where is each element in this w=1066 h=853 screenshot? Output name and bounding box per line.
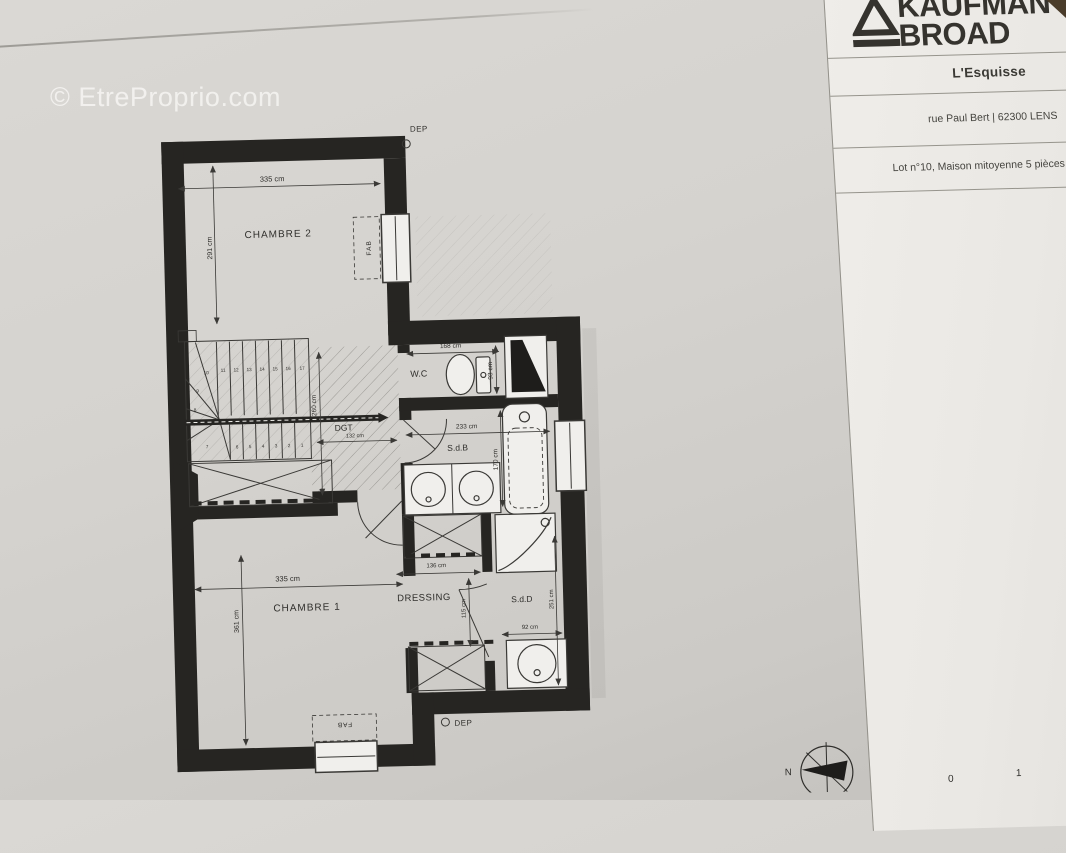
fab-bottom-label: FAB	[337, 721, 352, 728]
compass-north-label: N	[785, 767, 792, 778]
wall-segment	[161, 136, 405, 164]
dim-line	[178, 184, 380, 189]
label-dressing: DRESSING	[397, 592, 451, 604]
label-sdd: S.d.D	[511, 594, 533, 605]
step-number: 10	[204, 370, 210, 375]
dim-line	[241, 555, 246, 745]
scale-zero: 0	[948, 774, 954, 785]
dim-sdb-width: 233 cm	[456, 423, 478, 431]
door-leaf-chambre1	[365, 501, 403, 538]
dim-line	[407, 352, 499, 354]
step-number: 11	[221, 368, 226, 373]
watermark: © EtreProprio.com	[50, 82, 281, 113]
dim-chambre2-width: 335 cm	[260, 174, 285, 184]
wall-segment	[398, 345, 410, 353]
floor-plan-drawing: FAB FAB	[0, 0, 1066, 813]
closet-sliding-door	[406, 554, 481, 556]
dim-dressing-width: 136 cm	[426, 563, 446, 570]
dim-sdd-width: 92 cm	[522, 625, 538, 631]
shower-tray	[495, 513, 556, 573]
dim-dressing-depth: 115 cm	[461, 599, 468, 618]
door-arc-sdd	[459, 584, 487, 590]
wall-segment	[188, 503, 338, 520]
step-number: 13	[246, 367, 252, 372]
label-chambre2: CHAMBRE 2	[244, 228, 312, 241]
wall-segment	[412, 688, 591, 715]
wall-segment	[556, 316, 583, 423]
step-number: 17	[299, 366, 305, 371]
dim-line	[496, 346, 497, 394]
step-number: 14	[259, 367, 265, 372]
photographed-floor-plan-document: { "watermark": { "text": "© EtreProprio.…	[0, 0, 1066, 800]
dim-sdb-depth: 170 cm	[492, 449, 500, 471]
wall-segment	[388, 316, 581, 345]
toilet-bowl	[446, 354, 475, 395]
dep-bottom-label: DEP	[454, 718, 472, 727]
step-number: 16	[285, 366, 291, 371]
compass-rose: N	[784, 741, 853, 799]
dim-chambre1-width: 335 cm	[275, 574, 300, 584]
dim-chambre1-depth: 361 cm	[233, 610, 241, 633]
hatch-exterior	[415, 213, 553, 316]
step-number: 12	[233, 367, 239, 372]
dim-dgt-width: 132 cm	[346, 433, 365, 439]
dim-line	[195, 584, 403, 589]
dim-wc-depth: 93 cm	[487, 362, 494, 380]
technical-shaft	[504, 335, 548, 398]
wall-segment	[481, 512, 493, 572]
label-sdb: S.d.B	[447, 442, 468, 453]
scale-one: 1	[1016, 768, 1022, 779]
wall-segment	[485, 661, 496, 691]
label-dgt: DGT	[335, 422, 353, 432]
photo-tilt-wrapper: KAUFMAN BROAD L'Esquisse rue Paul Bert |…	[0, 0, 1066, 813]
wall-segment	[384, 158, 407, 216]
closet-cross	[408, 645, 485, 691]
compass-north-arrow	[802, 761, 849, 782]
wall-segment	[177, 743, 435, 772]
wall-segment	[412, 692, 436, 766]
dim-line	[502, 633, 562, 635]
dim-chambre2-depth: 291 cm	[207, 236, 215, 259]
dim-wc-width: 168 cm	[440, 343, 462, 351]
fab-right-label: FAB	[366, 240, 373, 255]
dep-bottom-marker	[441, 718, 449, 726]
closet-cross	[403, 514, 482, 558]
wall-segment	[312, 490, 357, 503]
scale-bar: 0 1	[948, 768, 1022, 785]
dep-top-label: DEP	[410, 124, 428, 133]
dim-sdd-depth: 251 cm	[549, 589, 556, 609]
label-wc: W.C	[410, 368, 428, 378]
label-chambre1: CHAMBRE 1	[273, 602, 341, 615]
step-number: 15	[272, 366, 278, 371]
door-leaf-solid	[173, 460, 199, 533]
dim-dgt-depth: 260 cm	[311, 395, 319, 417]
